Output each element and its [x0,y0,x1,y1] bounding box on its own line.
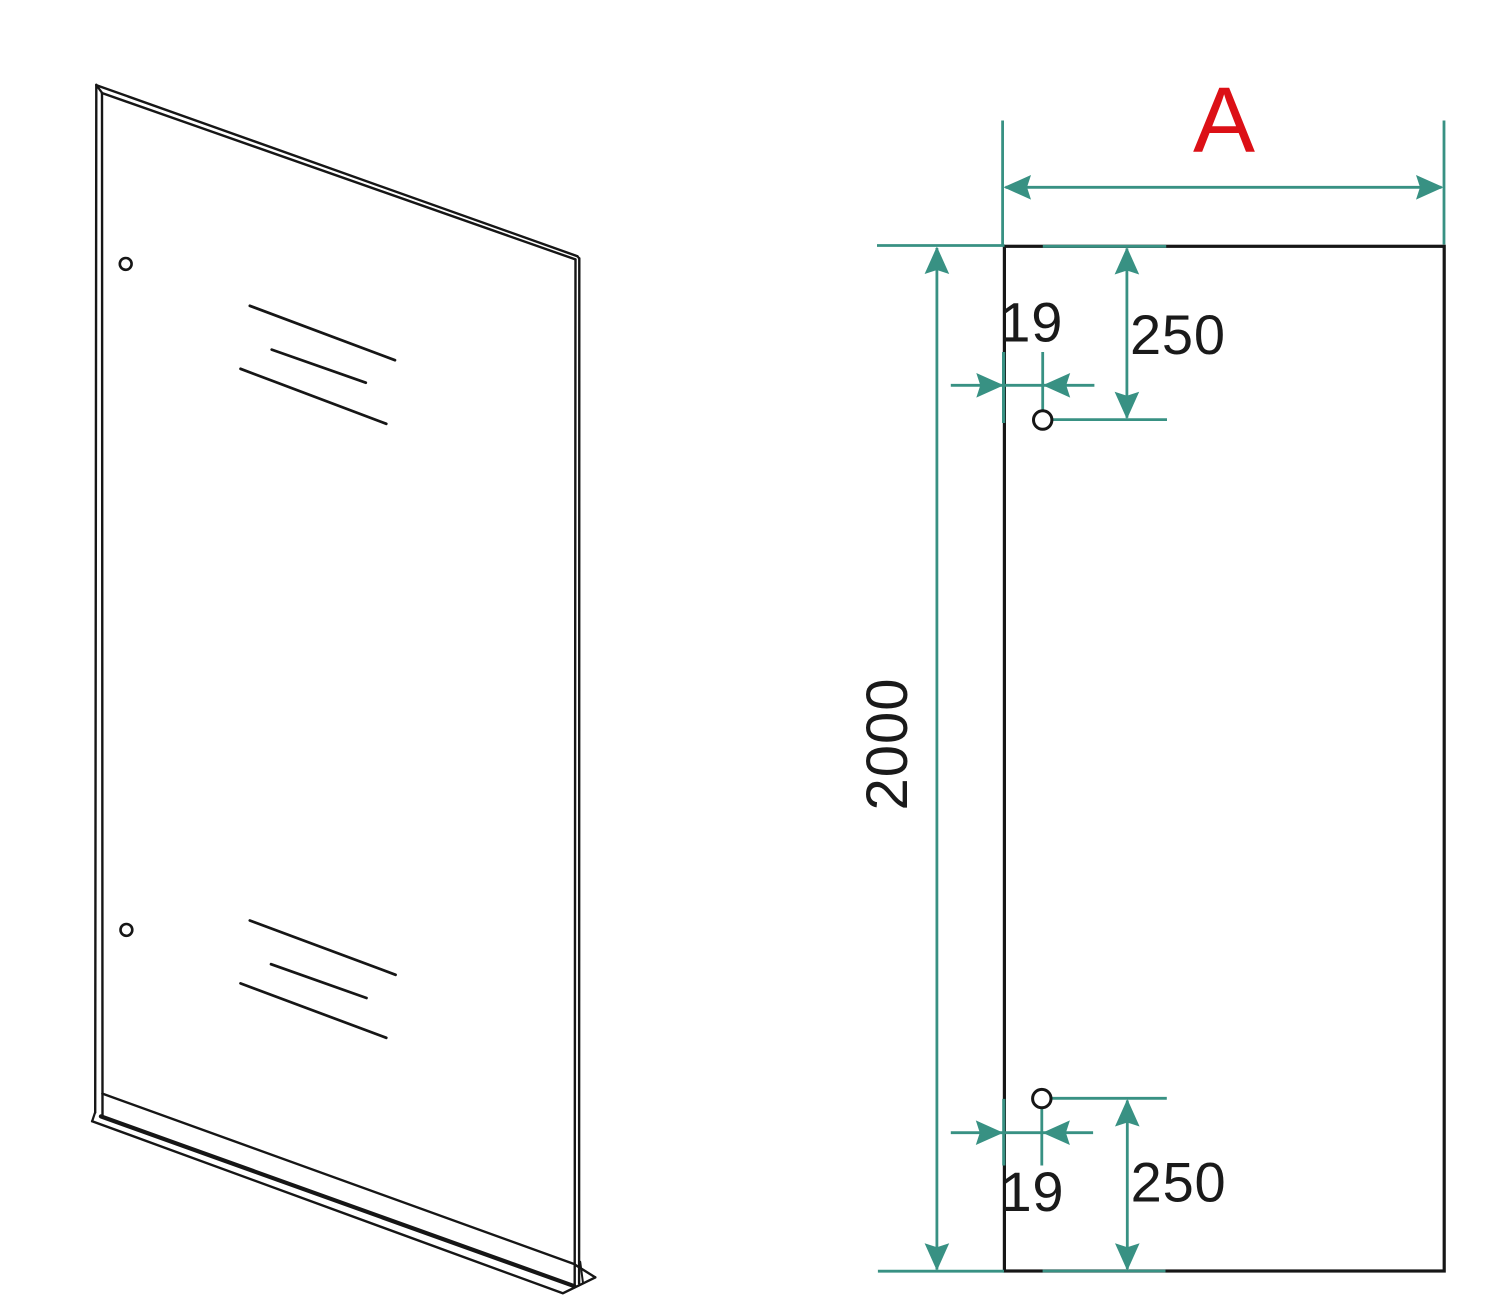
svg-text:A: A [1193,68,1255,172]
svg-text:2000: 2000 [855,677,920,810]
svg-text:250: 250 [1131,1151,1227,1214]
svg-text:250: 250 [1130,303,1226,366]
svg-text:19: 19 [1000,1160,1064,1223]
svg-text:19: 19 [999,290,1063,353]
